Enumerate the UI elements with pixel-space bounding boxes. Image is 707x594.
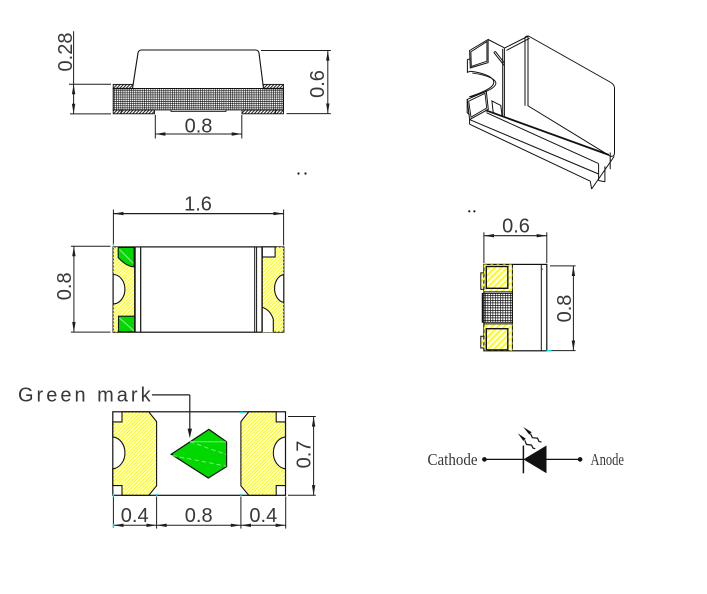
svg-text:Green mark: Green mark — [18, 385, 154, 407]
svg-text:0.6: 0.6 — [502, 216, 530, 238]
svg-text:1.6: 1.6 — [184, 194, 212, 216]
svg-text:0.8: 0.8 — [185, 116, 213, 138]
svg-text:0.6: 0.6 — [307, 70, 329, 98]
svg-text:0.4: 0.4 — [249, 505, 277, 527]
svg-text:0.7: 0.7 — [293, 441, 315, 469]
svg-text:Cathode: Cathode — [428, 450, 478, 469]
svg-text:Anode: Anode — [591, 450, 625, 469]
svg-text:0.8: 0.8 — [54, 272, 76, 300]
svg-text:0.28: 0.28 — [55, 33, 77, 72]
svg-text:0.4: 0.4 — [121, 505, 149, 527]
svg-text:0.8: 0.8 — [554, 295, 576, 323]
svg-text:0.8: 0.8 — [185, 505, 213, 527]
